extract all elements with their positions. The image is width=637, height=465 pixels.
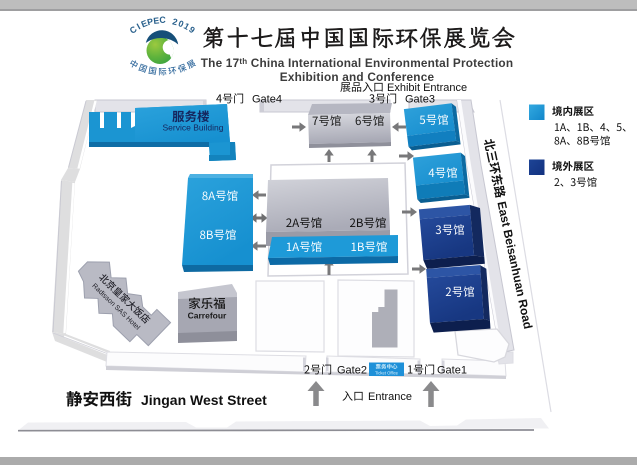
svg-text:Gate4: Gate4 — [252, 94, 282, 106]
svg-text:Gate2: Gate2 — [337, 365, 367, 377]
svg-text:Ticket Office: Ticket Office — [375, 371, 399, 376]
svg-text:Carrefour: Carrefour — [188, 311, 227, 321]
svg-text:Exhibit Entrance: Exhibit Entrance — [387, 82, 467, 94]
svg-text:C: C — [159, 15, 166, 25]
svg-text:Entrance: Entrance — [368, 391, 412, 403]
svg-text:Service Building: Service Building — [163, 123, 224, 133]
svg-text:Gate3: Gate3 — [405, 94, 435, 106]
svg-text:Jingan West Street: Jingan West Street — [141, 392, 267, 408]
svg-text:Gate1: Gate1 — [437, 365, 467, 377]
